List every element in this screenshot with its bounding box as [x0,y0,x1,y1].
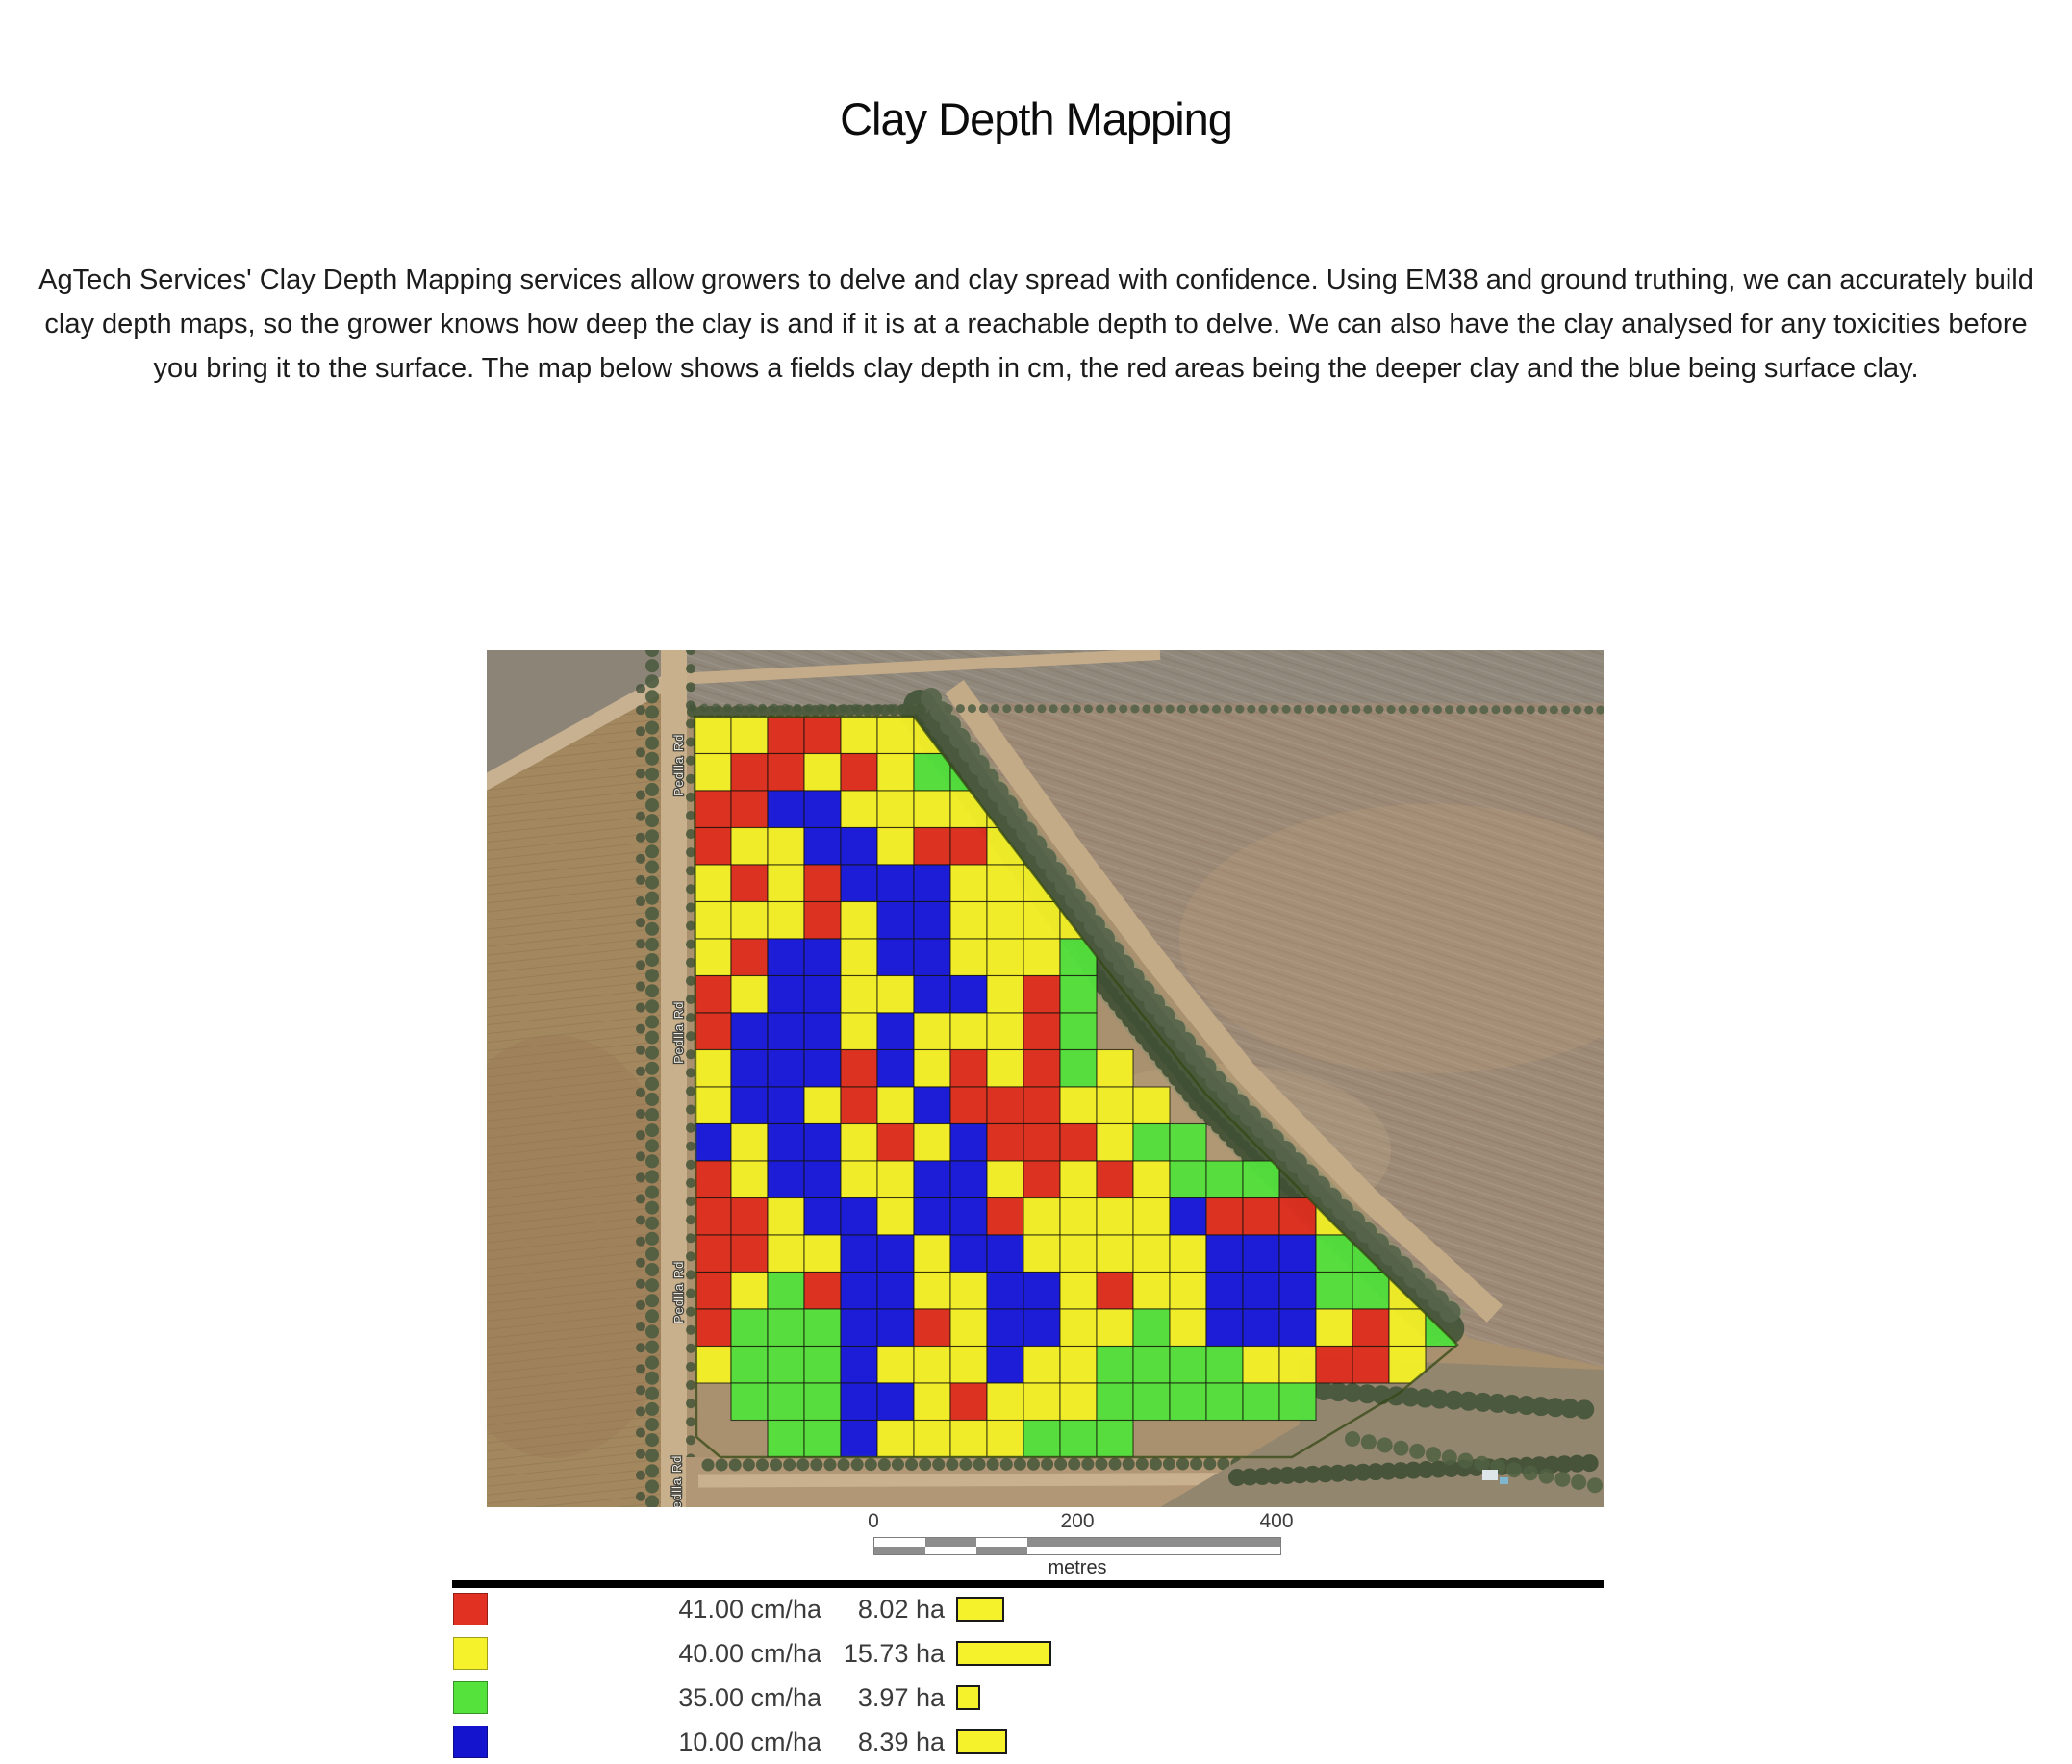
legend-area: 15.73 ha [821,1639,945,1669]
map-aerial-image: Pedlla Rd Pedlla Rd Pedlla Rd Pedlla Rd [487,650,1604,1507]
legend-area-bar [956,1641,1051,1666]
legend-row: 10.00 cm/ha 8.39 ha [453,1720,1223,1764]
legend-area: 3.97 ha [821,1683,945,1713]
legend-area: 8.02 ha [821,1595,945,1625]
intro-paragraph: AgTech Services' Clay Depth Mapping serv… [31,258,2041,391]
scale-label-0: 0 [868,1510,879,1533]
road-label: Pedlla Rd [671,734,686,796]
scale-label-200: 200 [1060,1510,1094,1533]
legend-swatch-green [453,1681,488,1714]
legend-swatch-red [453,1593,488,1625]
legend-area-bar [956,1597,1004,1622]
legend-rate: 35.00 cm/ha [488,1683,821,1713]
scale-label-400: 400 [1259,1510,1293,1533]
legend-rate: 41.00 cm/ha [488,1595,821,1625]
road-label: Pedlla Rd [671,1001,686,1064]
legend-area: 8.39 ha [821,1727,945,1757]
clay-depth-map: Pedlla Rd Pedlla Rd Pedlla Rd Pedlla Rd [487,650,1604,1507]
road-label: Pedlla Rd [671,1261,686,1323]
legend-swatch-blue [453,1726,488,1758]
legend-area-bar [956,1685,980,1710]
map-legend: 41.00 cm/ha 8.02 ha 40.00 cm/ha 15.73 ha… [453,1587,1223,1764]
scale-bar [873,1537,1281,1555]
legend-rate: 40.00 cm/ha [488,1639,821,1669]
legend-rate: 10.00 cm/ha [488,1727,821,1757]
road-label: Pedlla Rd [670,1455,684,1507]
pool [1500,1477,1508,1484]
legend-row: 41.00 cm/ha 8.02 ha [453,1587,1223,1631]
page-title: Clay Depth Mapping [0,92,2072,145]
scale-unit-label: metres [1048,1557,1106,1579]
building [1482,1470,1498,1480]
legend-swatch-yellow [453,1637,488,1670]
legend-row: 35.00 cm/ha 3.97 ha [453,1676,1223,1720]
legend-row: 40.00 cm/ha 15.73 ha [453,1631,1223,1676]
legend-area-bar [956,1729,1007,1754]
